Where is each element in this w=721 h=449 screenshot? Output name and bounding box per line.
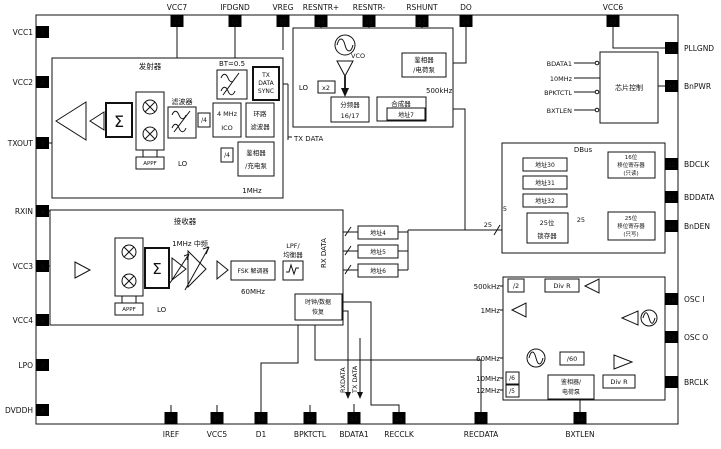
rx-appf-stub — [122, 296, 136, 303]
cc-10mhz-label: 10MHz — [550, 75, 573, 83]
rx-sigma-label: Σ — [152, 260, 161, 278]
tx-div4b-label: /4 — [224, 152, 230, 159]
transmitter-block: 发射器 Σ APPF LO 滤波器 /4 4 MHz ICO 环路 滤波器 鉴相… — [52, 58, 283, 198]
osc-divr1-label: Div R — [553, 282, 571, 290]
pin-label: VCC2 — [13, 78, 34, 87]
pin-number: 28 — [365, 19, 373, 26]
rx-cdr-l1: 时钟/数据 — [305, 298, 331, 306]
tx-pd-box — [238, 142, 274, 176]
tx-1mhz-label: 1MHz — [242, 187, 262, 195]
rx-cdr-box — [295, 294, 342, 320]
chip-control-title: 芯片控制 — [615, 83, 643, 92]
tx-filter-box — [168, 107, 196, 138]
pin-label: BPKTCTL — [294, 430, 327, 439]
pin-osc-o: 18OSC O — [665, 331, 708, 343]
pin-vcc4: 6VCC4 — [13, 314, 49, 326]
pin-number: 23 — [668, 84, 676, 91]
vco-x2-label: x2 — [322, 84, 330, 92]
pin-label: RECCLK — [384, 430, 415, 439]
pin-bnpwr: 23BnPWR — [665, 80, 711, 92]
pin-number: 20 — [668, 224, 676, 231]
pin-number: 22 — [668, 162, 676, 169]
osc-div60-label: /60 — [567, 355, 577, 363]
pin-number: 13 — [350, 416, 358, 423]
vco-500khz-label: 500kHz — [426, 87, 453, 95]
pin-vcc1: 1VCC1 — [13, 26, 49, 38]
pin-number: 10 — [213, 416, 221, 423]
pin-number: 8 — [41, 408, 45, 415]
tx-ico-l1: 4 MHz — [217, 110, 238, 118]
pin-number: 5 — [41, 264, 45, 271]
osc-div2-label: /2 — [513, 282, 519, 290]
rx-mixer-box — [115, 238, 143, 296]
tx-sigma-label: Σ — [114, 112, 124, 131]
pin-label: BRCLK — [684, 378, 709, 387]
osc-div5-label: /5 — [509, 388, 515, 395]
pin-label: VCC1 — [13, 28, 34, 37]
pin-number: 2 — [41, 80, 45, 87]
pin-label: IREF — [163, 430, 179, 439]
pin-label: BnDEN — [684, 222, 710, 231]
dbus-addr31-label: 地址31 — [535, 179, 555, 187]
pin-number: 26 — [462, 19, 470, 26]
pin-label: DO — [460, 3, 472, 12]
pin-label: VCC3 — [13, 262, 34, 271]
tx-sync-l2: DATA — [258, 80, 274, 87]
pin-number: 31 — [231, 19, 239, 26]
vco-div-l1: 分频器 — [340, 100, 360, 109]
pin-label: BXTLEN — [565, 430, 594, 439]
tx-ico-l2: ICO — [221, 124, 233, 132]
rx-if-label: 1MHz 中频 — [172, 239, 208, 248]
pin-number: 16 — [576, 416, 584, 423]
dbus-title: DBus — [574, 146, 593, 154]
rx-fsk-label: FSK 解调器 — [238, 267, 269, 275]
pin-label: DVDDH — [5, 406, 33, 415]
pin-number: 15 — [477, 416, 485, 423]
rx-lo-label: LO — [157, 306, 167, 314]
vco-pd-l2: /电荷泵 — [413, 65, 435, 74]
pin-label: BnPWR — [684, 82, 711, 91]
osc-divr2-label: Div R — [610, 378, 628, 386]
pin-number: 32 — [173, 19, 181, 26]
pin-label: IFDGND — [220, 3, 250, 12]
pin-label: VREG — [273, 3, 294, 12]
pin-number: 4 — [41, 209, 45, 216]
pin-label: OSC O — [684, 333, 708, 342]
pin-bnden: 20BnDEN — [665, 220, 710, 232]
rx-cdr-l2: 恢复 — [312, 308, 324, 316]
pin-number: 21 — [668, 195, 676, 202]
pin-number: 6 — [41, 318, 45, 325]
pin-label: VCC4 — [13, 316, 34, 325]
tx-loop-l1: 环路 — [254, 109, 268, 118]
cc-bubble-icon-2 — [595, 90, 599, 94]
rx-lpf-l2: 均衡器 — [283, 250, 303, 259]
pin-label: VCC7 — [167, 3, 188, 12]
pin-number: 12 — [306, 416, 314, 423]
vco-pd-l1: 鉴相器 — [414, 55, 434, 64]
dbus-sr16-l1: 16位 — [625, 153, 638, 161]
dbus-latch-l1: 25位 — [540, 218, 555, 227]
pin-number: 11 — [257, 416, 265, 423]
pin-label: VCC5 — [207, 430, 228, 439]
pin-label: RECDATA — [464, 430, 499, 439]
pin-label: RESNTR+ — [303, 3, 339, 12]
dbus-latch-l2: 锁存器 — [537, 231, 557, 240]
pin-osc-i: 19OSC I — [665, 293, 705, 305]
pin-label: OSC I — [684, 295, 705, 304]
receiver-block: 接收器 APPF LO Σ 1MHz 中频 FSK 解调器 60MHz LPF/… — [50, 210, 343, 325]
pin-number: 9 — [169, 416, 173, 423]
rxdata-label: RXDATA — [339, 367, 347, 393]
osc-pd-l1: 鉴相器/ — [561, 378, 582, 386]
osc-1mhz-label: 1MHz — [481, 307, 501, 315]
tx-bt-label: BT=0.5 — [219, 60, 245, 68]
pin-label: RSHUNT — [406, 3, 438, 12]
pin-number: 25 — [609, 19, 617, 26]
dbus-sr25-l3: (只写) — [623, 231, 638, 238]
pin-label: LPO — [18, 361, 33, 370]
pin-number: 27 — [418, 19, 426, 26]
pin-label: TXOUT — [7, 139, 34, 148]
tx-lo-label: LO — [178, 160, 188, 168]
pin-number: 19 — [668, 297, 676, 304]
transmitter-title: 发射器 — [139, 61, 162, 71]
tx-appf-label: APPF — [143, 161, 157, 167]
pin-number: 3 — [41, 141, 45, 148]
pin-number: 18 — [668, 335, 676, 342]
dbus-addr32-label: 地址32 — [535, 197, 555, 205]
dbus-bus25mid-label: 25 — [577, 216, 585, 224]
dbus-addr30-label: 地址30 — [535, 161, 555, 169]
osc-12mhz-label: 12MHz — [476, 387, 500, 395]
cc-bxtlen-label: BXTLEN — [547, 107, 572, 115]
osc-pd-l2: 电荷泵 — [562, 388, 580, 396]
tx-pd-l2: /充电泵 — [245, 161, 267, 170]
tx-loop-l2: 滤波器 — [250, 122, 270, 131]
pin-label: BDDATA — [684, 193, 715, 202]
dbus-sr16-l2: 移位寄存器 — [617, 161, 645, 169]
pin-number: 1 — [41, 30, 45, 37]
dbus-sr16-l3: (只读) — [623, 169, 638, 177]
rx-lpf-l1: LPF/ — [286, 242, 300, 250]
pin-rxin: 4RXIN — [15, 205, 49, 217]
pin-number: 30 — [279, 19, 287, 26]
vco-label: VCO — [351, 52, 365, 60]
dbus-bus25in-label: 25 — [484, 221, 492, 229]
tx-div4-label: /4 — [201, 117, 207, 124]
pin-d1: 11D1 — [255, 412, 268, 439]
dbus-block: DBus 地址30 地址31 地址32 16位 移位寄存器 (只读) 25位 锁… — [484, 143, 665, 253]
pin-pllgnd: 24PLLGND — [665, 42, 714, 54]
pin-dvddh: 8DVDDH — [5, 404, 49, 416]
osc-60mhz-label: 60MHz — [476, 355, 500, 363]
rx-60mhz-label: 60MHz — [241, 288, 265, 296]
addr4-label: 地址4 — [370, 229, 386, 237]
pin-label: VCC6 — [603, 3, 624, 12]
vco-synth-label: 合成器 — [391, 99, 411, 108]
pin-number: 29 — [317, 19, 325, 26]
pin-number: 14 — [395, 416, 403, 423]
receiver-title: 接收器 — [174, 216, 197, 226]
pin-label: RXIN — [15, 207, 33, 216]
tx-sync-l1: TX — [261, 72, 270, 79]
tx-data-label: TX DATA — [293, 135, 324, 143]
pin-vcc3: 5VCC3 — [13, 260, 49, 272]
addr5-label: 地址5 — [370, 248, 386, 256]
pin-vcc2: 2VCC2 — [13, 76, 49, 88]
pin-label: RESNTR- — [353, 3, 386, 12]
block-diagram: 发射器 Σ APPF LO 滤波器 /4 4 MHz ICO 环路 滤波器 鉴相… — [0, 0, 721, 449]
pin-label: PLLGND — [684, 44, 714, 53]
pin-do: 26DO — [460, 3, 473, 27]
tx-loop-filter-box — [246, 103, 274, 137]
pin-label: BDCLK — [684, 160, 710, 169]
pin-txout: 3TXOUT — [7, 137, 49, 149]
tx-appf-stub — [143, 150, 157, 157]
vco-addr7-label: 地址7 — [398, 111, 414, 119]
tx-filter-title: 滤波器 — [172, 97, 193, 106]
vco-div-l2: 16/17 — [341, 112, 360, 120]
cc-bdata1-label: BDATA1 — [547, 60, 572, 68]
vco-block: VCO LO x2 分频器 16/17 合成器 地址7 鉴相器 /电荷泵 500… — [293, 28, 453, 143]
osc-10mhz-label: 10MHz — [476, 375, 500, 383]
pin-number: 17 — [668, 380, 676, 387]
pin-iref: 9IREF — [163, 412, 179, 439]
osc-500khz-label: 500kHz — [474, 283, 501, 291]
cc-bubble-icon-1 — [595, 61, 599, 65]
dbus-bus5-label: 5 — [503, 205, 507, 213]
tx-sync-l3: SYNC — [258, 88, 274, 95]
pin-lpo: 7LPO — [18, 359, 49, 371]
pin-number: 7 — [41, 363, 45, 370]
addr6-label: 地址6 — [370, 267, 386, 275]
dbus-sr25-l1: 25位 — [625, 214, 638, 222]
pin-label: BDATA1 — [339, 430, 368, 439]
dbus-sr25-l2: 移位寄存器 — [617, 222, 645, 230]
pin-label: D1 — [256, 430, 267, 439]
pin-bdclk: 22BDCLK — [665, 158, 710, 170]
rx-data-label: RX DATA — [320, 238, 328, 268]
rx-appf-label: APPF — [122, 307, 136, 313]
pin-number: 24 — [668, 46, 676, 53]
txdata-label: TX DATA — [351, 365, 359, 394]
tx-pd-l1: 鉴相器 — [246, 148, 266, 157]
pin-brclk: 17BRCLK — [665, 376, 709, 388]
cc-bubble-icon-3 — [595, 108, 599, 112]
osc-div6-label: /6 — [509, 375, 515, 382]
cc-bpktctl-label: BPKTCTL — [544, 89, 572, 97]
vco-lo-label: LO — [299, 84, 309, 92]
pin-bddata: 21BDDATA — [665, 191, 715, 203]
